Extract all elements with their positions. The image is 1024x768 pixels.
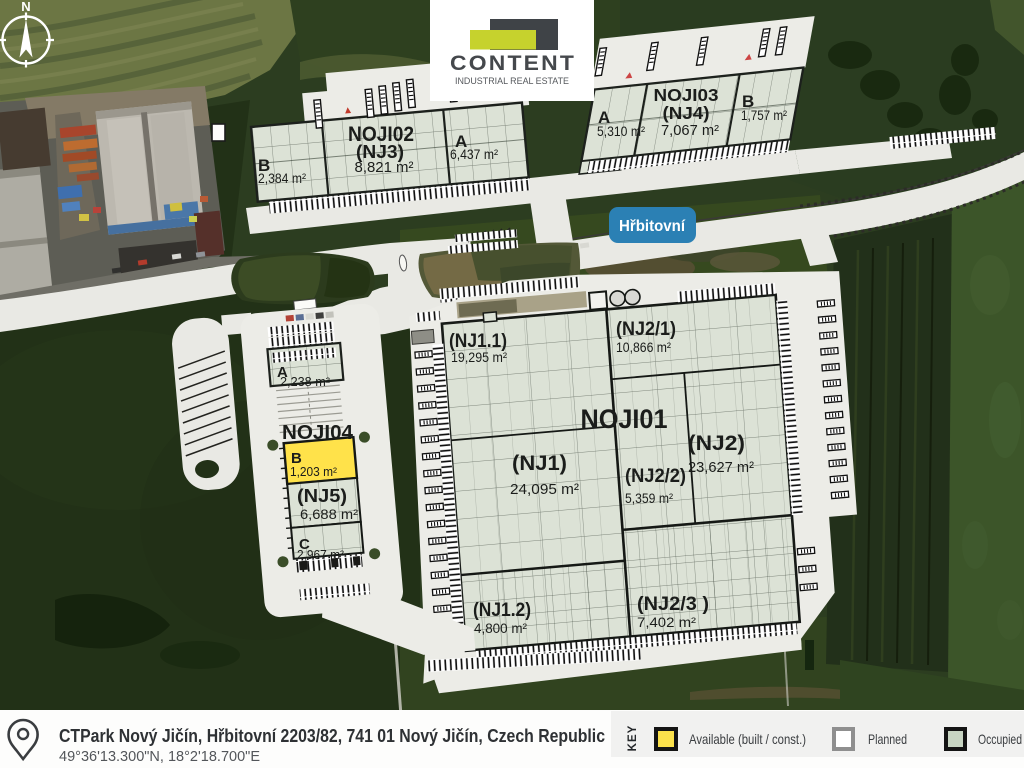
svg-text:5,310 m²: 5,310 m² bbox=[597, 124, 645, 139]
svg-text:1,203 m²: 1,203 m² bbox=[290, 464, 338, 479]
svg-text:2,238 m²: 2,238 m² bbox=[280, 374, 331, 389]
svg-text:CONTENT: CONTENT bbox=[450, 52, 576, 75]
svg-text:1,757 m²: 1,757 m² bbox=[741, 108, 787, 123]
svg-text:KEY: KEY bbox=[627, 725, 639, 752]
svg-text:23,627 m²: 23,627 m² bbox=[688, 459, 754, 476]
svg-text:Occupied: Occupied bbox=[978, 731, 1022, 747]
svg-text:(NJ2): (NJ2) bbox=[688, 432, 745, 455]
svg-text:2,967 m²: 2,967 m² bbox=[297, 547, 345, 562]
svg-text:10,866 m²: 10,866 m² bbox=[616, 339, 671, 355]
svg-text:NOJI01: NOJI01 bbox=[581, 404, 668, 434]
svg-text:6,688 m²: 6,688 m² bbox=[300, 506, 358, 522]
svg-text:(NJ5): (NJ5) bbox=[297, 486, 347, 506]
svg-text:7,067 m²: 7,067 m² bbox=[661, 123, 719, 139]
svg-text:(NJ4): (NJ4) bbox=[663, 103, 710, 123]
svg-text:NOJI04: NOJI04 bbox=[282, 422, 354, 444]
svg-text:Available (built / const.): Available (built / const.) bbox=[689, 731, 806, 747]
svg-text:INDUSTRIAL REAL ESTATE: INDUSTRIAL REAL ESTATE bbox=[455, 76, 569, 86]
svg-text:24,095 m²: 24,095 m² bbox=[510, 481, 579, 498]
svg-text:7,402 m²: 7,402 m² bbox=[637, 614, 696, 630]
svg-text:5,359 m²: 5,359 m² bbox=[625, 490, 673, 506]
svg-text:Planned: Planned bbox=[868, 731, 907, 747]
svg-text:(NJ1.2): (NJ1.2) bbox=[473, 600, 531, 621]
svg-text:(NJ2/3 ): (NJ2/3 ) bbox=[637, 594, 709, 615]
svg-text:8,821 m²: 8,821 m² bbox=[355, 159, 414, 176]
svg-text:4,800 m²: 4,800 m² bbox=[474, 620, 527, 636]
svg-text:19,295 m²: 19,295 m² bbox=[451, 349, 507, 365]
svg-text:(NJ2/2): (NJ2/2) bbox=[625, 466, 686, 487]
svg-text:49°36'13.300"N, 18°2'18.700"E: 49°36'13.300"N, 18°2'18.700"E bbox=[59, 749, 260, 765]
svg-text:2,384 m²: 2,384 m² bbox=[258, 171, 306, 186]
svg-text:NOJI03: NOJI03 bbox=[654, 85, 719, 105]
svg-text:CTPark Nový Jičín, Hřbitovní 2: CTPark Nový Jičín, Hřbitovní 2203/82, 74… bbox=[59, 726, 605, 746]
svg-text:Hřbitovní: Hřbitovní bbox=[619, 218, 686, 235]
svg-text:(NJ2/1): (NJ2/1) bbox=[616, 319, 676, 340]
svg-text:6,437 m²: 6,437 m² bbox=[450, 147, 498, 162]
svg-text:(NJ1): (NJ1) bbox=[512, 452, 567, 475]
svg-text:N: N bbox=[21, 0, 30, 14]
